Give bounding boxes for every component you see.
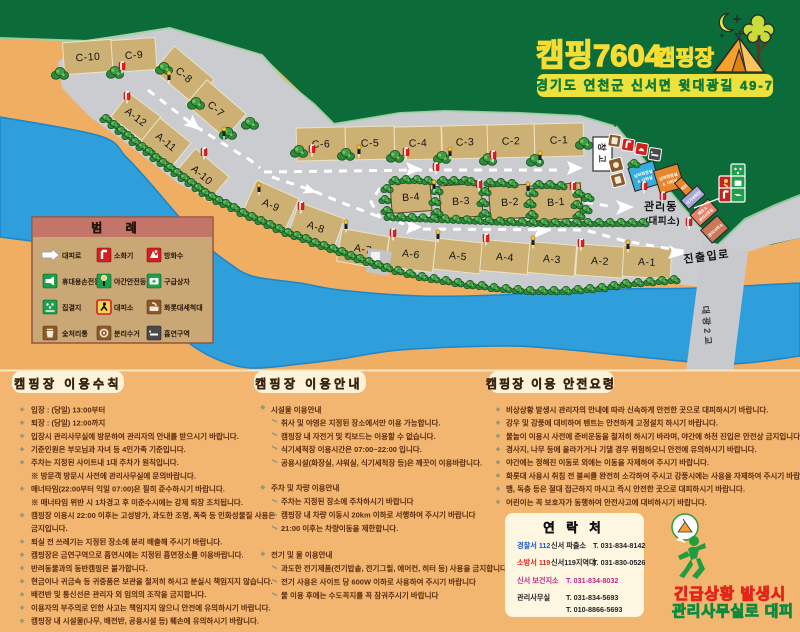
svg-text:이용자의 부주의로 인한 사고는 책임지지 않으니 안전에: 이용자의 부주의로 인한 사고는 책임지지 않으니 안전에 유의하시기 바랍니다… [31, 602, 271, 612]
svg-text:C-3: C-3 [456, 136, 475, 148]
svg-text:화롯대 사용시 취침 전 불씨를 완전히 소각하여 주시고: 화롯대 사용시 취침 전 불씨를 완전히 소각하여 주시고 강풍시에는 사용을 … [506, 470, 800, 480]
svg-text:C-2: C-2 [502, 135, 521, 147]
svg-text:휴대용손전등: 휴대용손전등 [62, 277, 101, 286]
svg-text:A-4: A-4 [496, 251, 515, 265]
svg-text:신서 파출소: 신서 파출소 [551, 541, 586, 550]
svg-text:캠핑장 이용안내: 캠핑장 이용안내 [255, 376, 363, 391]
svg-text:창고: 창고 [597, 143, 607, 167]
svg-text:C-4: C-4 [409, 137, 428, 149]
svg-text:취사 및 야영은 지정된 장소에서만 이용 가능합니다.: 취사 및 야영은 지정된 장소에서만 이용 가능합니다. [281, 418, 441, 428]
svg-text:경기도 연천군 신서면 윗대광길 49-7: 경기도 연천군 신서면 윗대광길 49-7 [536, 78, 774, 93]
svg-text:B-1: B-1 [547, 196, 566, 209]
svg-text:긴급상황 발생시: 긴급상황 발생시 [674, 584, 786, 603]
svg-text:C-9: C-9 [124, 49, 143, 62]
svg-text:주차 및 차량 이용안내: 주차 및 차량 이용안내 [271, 483, 339, 493]
svg-text:B-3: B-3 [452, 195, 471, 208]
svg-text:(대피소): (대피소) [645, 215, 680, 227]
svg-text:식기세척장 이용시간은 07:00~22:00 입니다.: 식기세척장 이용시간은 07:00~22:00 입니다. [281, 444, 422, 454]
svg-text:흡연구역: 흡연구역 [164, 329, 190, 338]
svg-text:퇴실 전 쓰레기는 지정된 장소에 분리 배출해 주시기 바: 퇴실 전 쓰레기는 지정된 장소에 분리 배출해 주시기 바랍니다. [31, 536, 222, 546]
svg-text:T. 031-834-8142: T. 031-834-8142 [593, 541, 645, 550]
svg-text:A-6: A-6 [401, 247, 420, 261]
svg-text:분리수거: 분리수거 [114, 329, 140, 338]
svg-text:C-10: C-10 [75, 51, 101, 65]
svg-text:반려동물과의 동반캠핑은 불가합니다.: 반려동물과의 동반캠핑은 불가합니다. [31, 563, 148, 573]
svg-text:※ 매너타임 위반 시 1차경고 후 미준수시에는 강제 퇴: ※ 매너타임 위반 시 1차경고 후 미준수시에는 강제 퇴장 조치됩니다. [31, 497, 243, 507]
svg-text:B-4: B-4 [402, 191, 421, 204]
svg-text:매너타임(22:00부터 익일 07:00)은 필히 준수하: 매너타임(22:00부터 익일 07:00)은 필히 준수하시기 바랍니다. [31, 484, 225, 494]
svg-text:B-2: B-2 [501, 196, 520, 209]
svg-text:캠핑장 이용수칙: 캠핑장 이용수칙 [14, 376, 122, 391]
svg-text:비상상황 발생시 관리자의 안내에 따라 신속하게 안전한: 비상상황 발생시 관리자의 안내에 따라 신속하게 안전한 곳으로 대피하시기 … [506, 404, 768, 414]
svg-text:물 이용 후에는 수도꼭지를 꼭 잠궈주시기 바랍니다: 물 이용 후에는 수도꼭지를 꼭 잠궈주시기 바랍니다 [281, 590, 439, 600]
svg-text:A-2: A-2 [591, 255, 610, 268]
svg-text:경찰서 112: 경찰서 112 [517, 541, 550, 550]
svg-text:대피소: 대피소 [114, 303, 134, 312]
svg-text:주차는 지정된 사이트내 1대 주차가 원칙입니다.: 주차는 지정된 사이트내 1대 주차가 원칙입니다. [31, 457, 179, 467]
svg-text:21:00 이후는 차량이동을 제한합니다.: 21:00 이후는 차량이동을 제한합니다. [281, 523, 398, 533]
svg-text:캠핑장은 금연구역으로 흡연시에는 지정된 흡연장소를 이용: 캠핑장은 금연구역으로 흡연시에는 지정된 흡연장소를 이용바랍니다. [31, 550, 244, 560]
svg-text:T. 010-8866-5693: T. 010-8866-5693 [566, 605, 622, 614]
svg-text:구급상자: 구급상자 [164, 277, 190, 286]
svg-text:뱀, 독충 등은 절대 접근하지 마시고 즉시 안전한 곳으: 뱀, 독충 등은 절대 접근하지 마시고 즉시 안전한 곳으로 대피하시기 바랍… [506, 484, 745, 494]
svg-text:야간안전등: 야간안전등 [114, 277, 147, 286]
svg-text:경사지, 나무 등에 올라가거나 기댈 경우 위험하오니 안: 경사지, 나무 등에 올라가거나 기댈 경우 위험하오니 안전에 유의하시기 바… [506, 444, 757, 454]
svg-text:전기 및 물 이용안내: 전기 및 물 이용안내 [271, 550, 333, 560]
svg-text:A-3: A-3 [543, 253, 562, 267]
svg-text:금지입니다.: 금지입니다. [31, 523, 68, 533]
svg-text:캠핑7604: 캠핑7604 [536, 38, 663, 73]
svg-text:현금이나 귀금속 등 귀중품은 보관을 철저히 하시고 분실: 현금이나 귀금속 등 귀중품은 보관을 철저히 하시고 분실시 책임지지 않습니… [31, 576, 273, 586]
svg-text:C-5: C-5 [361, 137, 380, 149]
svg-text:입장 : (당일) 13:00부터: 입장 : (당일) 13:00부터 [31, 404, 105, 414]
svg-text:야간에는 정해진 이동로 외에는 이동을 자제하여 주시기: 야간에는 정해진 이동로 외에는 이동을 자제하여 주시기 바랍니다. [506, 457, 709, 467]
svg-text:관리동: 관리동 [644, 199, 677, 213]
svg-text:※ 방문객 방문시 사전에 관리사무실에 문의바랍니다.: ※ 방문객 방문시 사전에 관리사무실에 문의바랍니다. [31, 470, 196, 480]
svg-text:캠핑장 내 차량 이동시 20km 이하로 서행하여 주시기: 캠핑장 내 차량 이동시 20km 이하로 서행하여 주시기 바랍니다 [281, 510, 476, 520]
svg-text:어린이는 꼭 보호자가 동행하여 안전사고에 대비하시기 바: 어린이는 꼭 보호자가 동행하여 안전사고에 대비하시기 바랍니다. [506, 497, 707, 507]
svg-text:집결지: 집결지 [62, 303, 81, 312]
svg-text:입장시 관리사무실에 방문하여 관리자의 안내를 받으시기: 입장시 관리사무실에 방문하여 관리자의 안내를 받으시기 바랍니다. [31, 431, 239, 441]
svg-text:캠핑장 내 자전거 및 킥보드는 이용할 수 없습니다.: 캠핑장 내 자전거 및 킥보드는 이용할 수 없습니다. [281, 431, 436, 441]
svg-text:소방서 119: 소방서 119 [517, 558, 550, 567]
svg-text:숯처리통: 숯처리통 [62, 329, 88, 338]
svg-text:신서 보건지소: 신서 보건지소 [517, 576, 559, 585]
svg-text:T. 031-830-0526: T. 031-830-0526 [593, 558, 645, 567]
svg-text:물놀이 이용시 사전에 준비운동을 철저히 하시기 바라며,: 물놀이 이용시 사전에 준비운동을 철저히 하시기 바라며, 야간에 하천 진입… [506, 431, 800, 441]
svg-text:배전반 및 통신선은 관리자 외 임의의 조작을 금지합니다: 배전반 및 통신선은 관리자 외 임의의 조작을 금지합니다. [31, 589, 206, 599]
svg-text:캠핑장 이용 안전요령: 캠핑장 이용 안전요령 [486, 376, 616, 391]
svg-text:캠핑장 내 시설물(나무, 배전반, 공용시설 등) 훼손에: 캠핑장 내 시설물(나무, 배전반, 공용시설 등) 훼손에 유의하시기 바랍니… [31, 616, 259, 626]
svg-text:퇴장 : (당일) 12:00까지: 퇴장 : (당일) 12:00까지 [31, 418, 105, 428]
svg-text:T. 031-834-5693: T. 031-834-5693 [566, 593, 618, 602]
svg-text:연 락 처: 연 락 처 [543, 520, 604, 535]
svg-text:T. 031-834-8032: T. 031-834-8032 [566, 576, 618, 585]
svg-text:방화수: 방화수 [164, 251, 184, 260]
svg-text:공용시설(화장실, 샤워실, 식기세척장 등)은 깨끗이 이: 공용시설(화장실, 샤워실, 식기세척장 등)은 깨끗이 이용바랍니다. [281, 457, 482, 467]
svg-text:캠핑장 이용시 22:00 이후는 고성방가, 과도한 조명: 캠핑장 이용시 22:00 이후는 고성방가, 과도한 조명, 폭죽 등 인화성… [31, 510, 275, 520]
svg-text:신서119지역대: 신서119지역대 [551, 558, 596, 567]
svg-text:주차는 지정된 장소에 주차하시기 바랍니다: 주차는 지정된 장소에 주차하시기 바랍니다 [281, 496, 414, 506]
svg-text:전기 사용은 사이트 당 600W 이하로 사용하여 주시기: 전기 사용은 사이트 당 600W 이하로 사용하여 주시기 바랍니다 [281, 577, 476, 587]
svg-text:소화기: 소화기 [114, 251, 133, 260]
svg-text:A-1: A-1 [638, 256, 656, 269]
svg-text:대피로: 대피로 [62, 251, 82, 260]
svg-text:C-1: C-1 [550, 134, 569, 146]
svg-text:관리사무실로 대피: 관리사무실로 대피 [672, 603, 794, 620]
svg-text:캠핑장: 캠핑장 [656, 47, 714, 70]
svg-text:기준인원은 부모님과 자녀 등 4인가족 기준입니다.: 기준인원은 부모님과 자녀 등 4인가족 기준입니다. [31, 444, 186, 454]
svg-text:범 례: 범 례 [91, 220, 146, 235]
svg-text:강우 및 강풍에 대비하여 텐트는 안전하게 고정설치 하시: 강우 및 강풍에 대비하여 텐트는 안전하게 고정설치 하시기 바랍니다. [506, 418, 718, 428]
svg-text:화롯대세척대: 화롯대세척대 [164, 303, 203, 312]
svg-text:A-5: A-5 [448, 250, 467, 264]
svg-text:과도한 전기제품(전기밥솥, 전기그릴, 에어컨, 히터 등: 과도한 전기제품(전기밥솥, 전기그릴, 에어컨, 히터 등) 사용을 금지합니… [281, 563, 509, 573]
svg-text:시설물 이용안내: 시설물 이용안내 [271, 404, 321, 414]
svg-text:관리사무실: 관리사무실 [517, 593, 550, 602]
